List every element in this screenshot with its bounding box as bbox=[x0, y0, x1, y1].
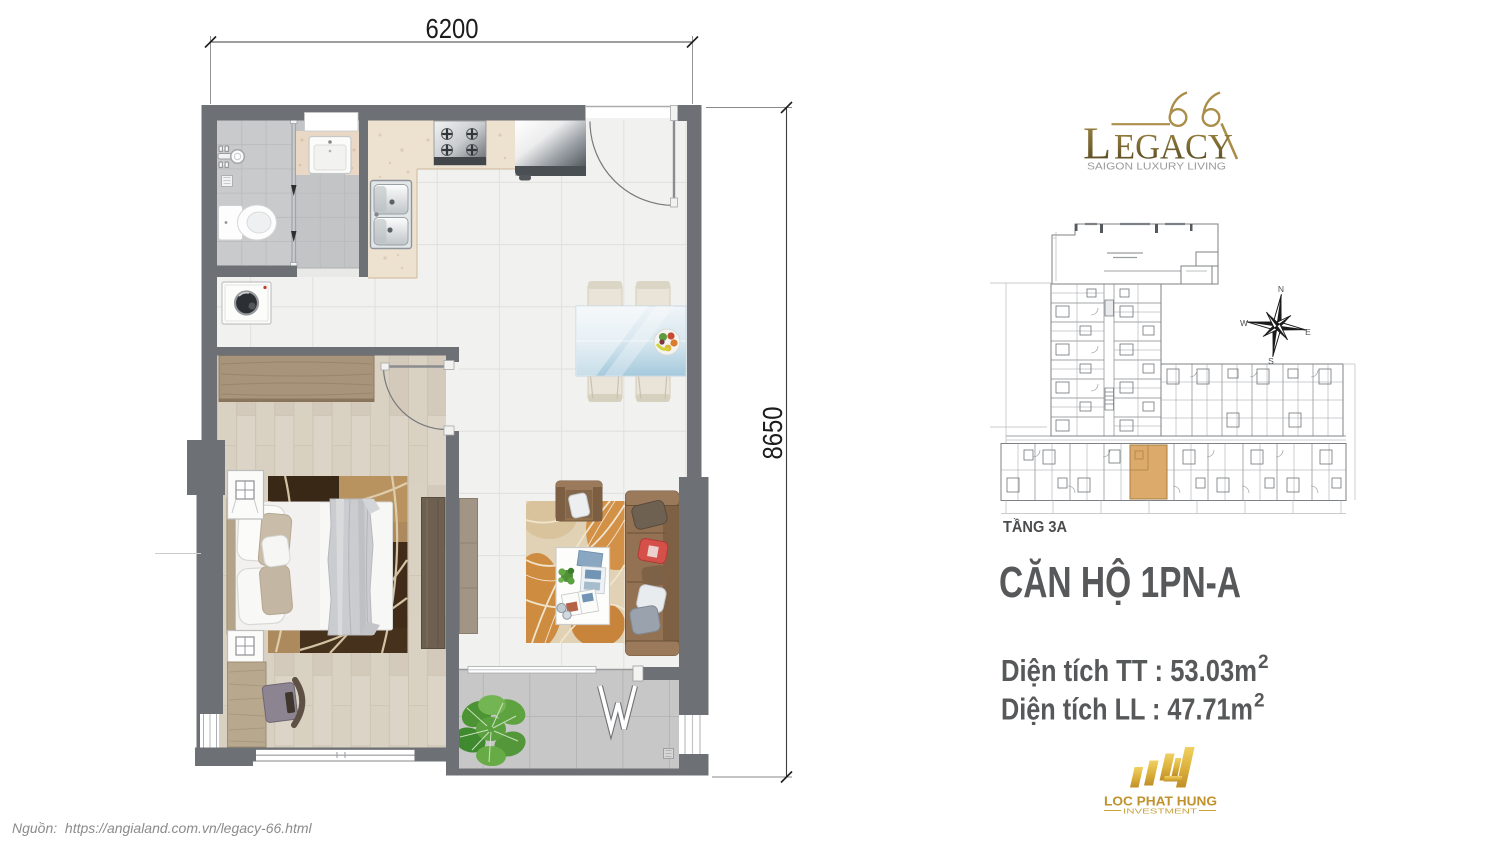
svg-text:SAIGON LUXURY LIVING: SAIGON LUXURY LIVING bbox=[1087, 162, 1226, 173]
svg-text:2: 2 bbox=[1258, 652, 1269, 673]
svg-text:EGACY: EGACY bbox=[1114, 127, 1233, 167]
svg-text:N: N bbox=[1278, 284, 1284, 294]
svg-text:2: 2 bbox=[1254, 691, 1265, 712]
svg-text:E: E bbox=[1305, 327, 1311, 337]
svg-text:S: S bbox=[1268, 356, 1274, 366]
svg-text:TẦNG 3A: TẦNG 3A bbox=[1003, 519, 1067, 536]
svg-text:6200: 6200 bbox=[426, 13, 479, 44]
svg-text:Diện tích TT : 53.03m: Diện tích TT : 53.03m bbox=[1001, 653, 1257, 688]
svg-text:8650: 8650 bbox=[757, 407, 788, 460]
svg-text:W: W bbox=[1240, 318, 1248, 328]
svg-text:Diện tích LL : 47.71m: Diện tích LL : 47.71m bbox=[1001, 692, 1253, 727]
svg-text:CĂN HỘ 1PN-A: CĂN HỘ 1PN-A bbox=[999, 556, 1241, 607]
svg-text:LOC PHAT HUNG: LOC PHAT HUNG bbox=[1104, 794, 1217, 809]
svg-text:Nguồn: https://angialand.com.: Nguồn: https://angialand.com.vn/legacy-6… bbox=[12, 820, 313, 836]
svg-text:INVESTMENT: INVESTMENT bbox=[1123, 809, 1198, 816]
